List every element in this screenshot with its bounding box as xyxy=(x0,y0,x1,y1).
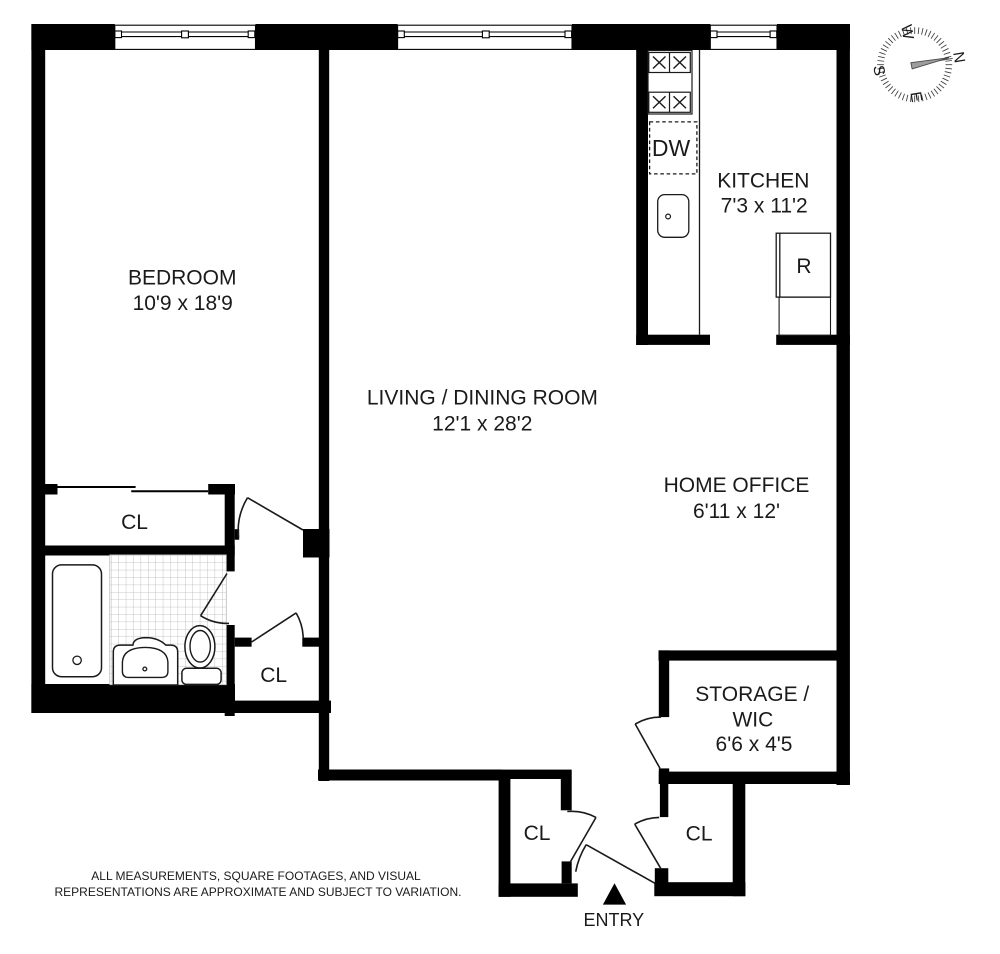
svg-text:CL: CL xyxy=(260,664,287,687)
svg-text:10'9 x 18'9: 10'9 x 18'9 xyxy=(133,292,233,315)
svg-text:12'1 x 28'2: 12'1 x 28'2 xyxy=(432,413,532,436)
svg-text:6'11 x 12': 6'11 x 12' xyxy=(693,500,780,523)
svg-text:CL: CL xyxy=(524,822,551,845)
svg-text:CL: CL xyxy=(121,511,148,534)
svg-text:ENTRY: ENTRY xyxy=(583,910,644,930)
svg-text:CL: CL xyxy=(686,823,713,846)
svg-text:REPRESENTATIONS ARE APPROXIMAT: REPRESENTATIONS ARE APPROXIMATE AND SUBJ… xyxy=(55,885,462,899)
svg-text:LIVING / DINING ROOM: LIVING / DINING ROOM xyxy=(367,387,598,410)
svg-text:6'6 x 4'5: 6'6 x 4'5 xyxy=(716,733,793,756)
svg-text:7'3 x 11'2: 7'3 x 11'2 xyxy=(721,194,808,217)
svg-text:WIC: WIC xyxy=(732,708,773,731)
svg-text:HOME OFFICE: HOME OFFICE xyxy=(664,474,810,497)
svg-text:STORAGE /: STORAGE / xyxy=(695,683,809,706)
svg-text:KITCHEN: KITCHEN xyxy=(717,170,809,193)
svg-text:BEDROOM: BEDROOM xyxy=(128,266,237,289)
svg-text:R: R xyxy=(796,255,811,278)
svg-text:ALL MEASUREMENTS, SQUARE FOOTA: ALL MEASUREMENTS, SQUARE FOOTAGES, AND V… xyxy=(91,869,421,883)
svg-text:DW: DW xyxy=(652,135,691,161)
